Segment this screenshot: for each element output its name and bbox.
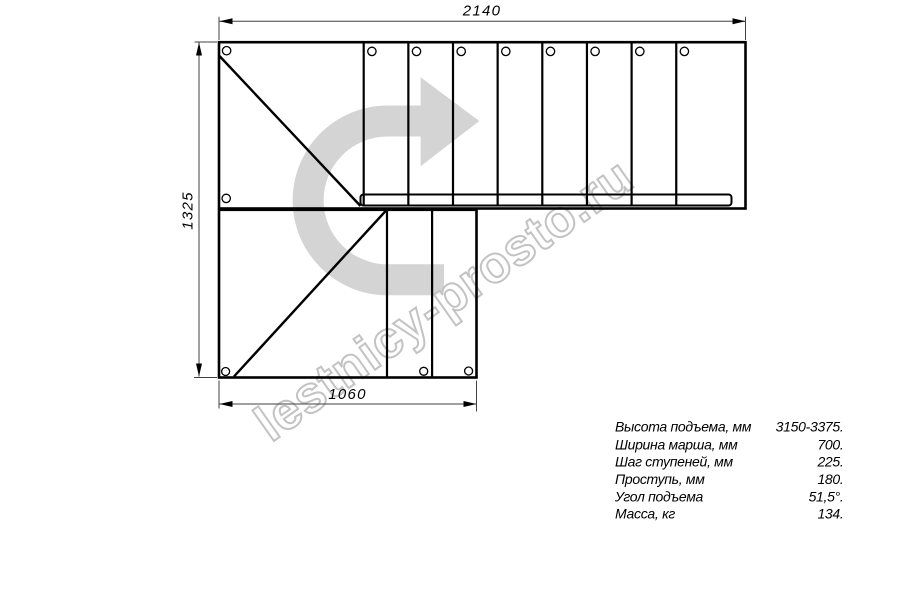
svg-text:3150-3375.: 3150-3375.	[776, 419, 844, 435]
svg-text:700.: 700.	[817, 436, 843, 452]
svg-text:134.: 134.	[817, 506, 843, 522]
svg-text:Угол подъема: Угол подъема	[614, 488, 704, 504]
svg-text:225.: 225.	[816, 454, 843, 470]
svg-text:1060: 1060	[328, 386, 367, 403]
svg-text:Проступь, мм: Проступь, мм	[615, 471, 705, 487]
svg-text:51,5°.: 51,5°.	[809, 488, 844, 504]
svg-text:180.: 180.	[817, 471, 843, 487]
svg-text:2140: 2140	[462, 3, 502, 20]
svg-text:1325: 1325	[180, 191, 197, 230]
svg-text:Шаг ступеней, мм: Шаг ступеней, мм	[615, 454, 733, 470]
svg-text:Высота подъема, мм: Высота подъема, мм	[615, 419, 752, 435]
svg-text:Масса, кг: Масса, кг	[615, 506, 675, 522]
svg-text:Ширина марша, мм: Ширина марша, мм	[615, 436, 738, 452]
